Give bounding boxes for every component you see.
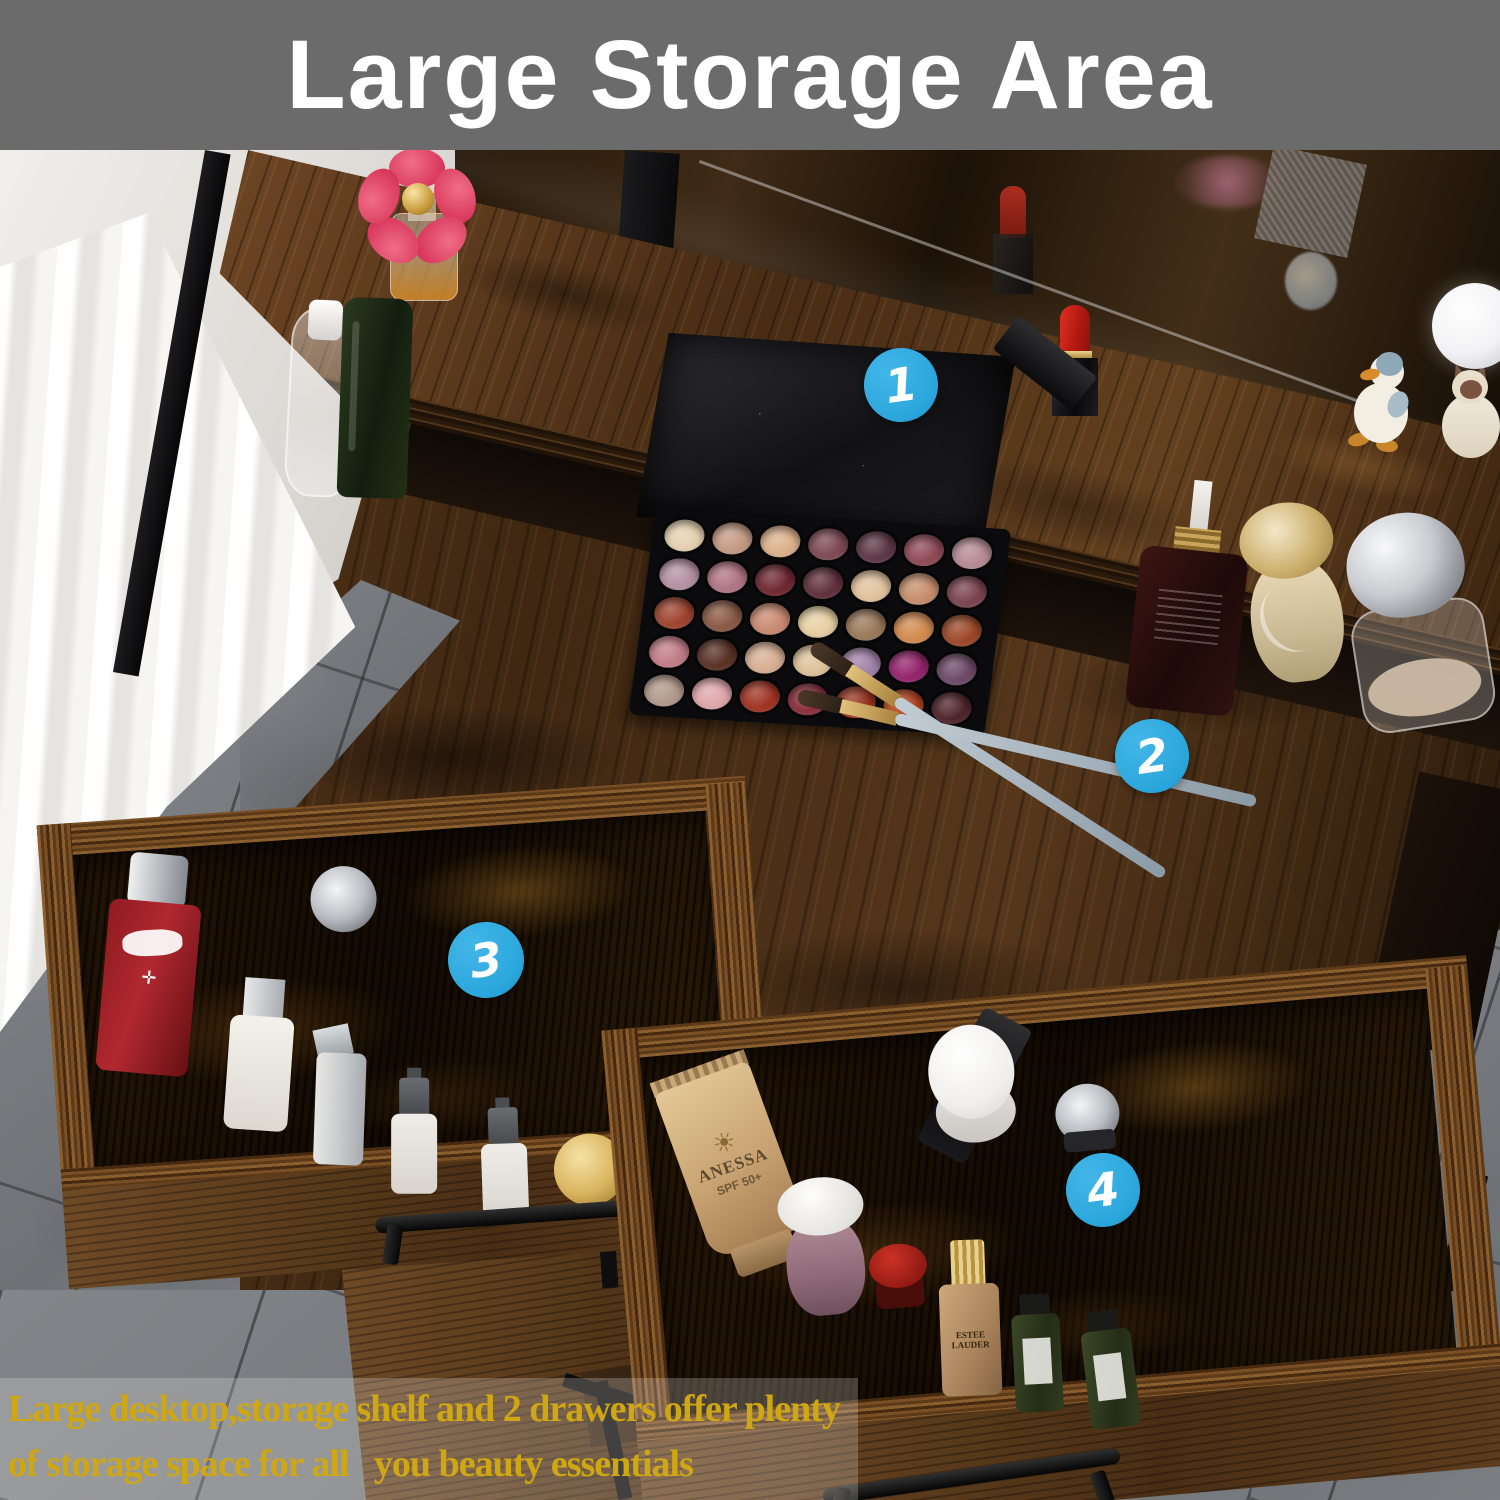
duck-cap xyxy=(1376,352,1403,376)
dropper-bottle xyxy=(391,1076,437,1194)
eyeshadow-pan xyxy=(705,560,749,594)
bottle-body xyxy=(391,1114,437,1194)
bottle-cap xyxy=(243,977,286,1020)
dropper-cap xyxy=(487,1107,518,1146)
white-compact xyxy=(924,1021,1020,1152)
banner-title: Large Storage Area xyxy=(286,19,1213,131)
bottle-body: ESTEE LAUDER xyxy=(939,1283,1003,1397)
label-cross: ✛ xyxy=(141,969,158,986)
eyeshadow-pan xyxy=(743,641,787,675)
eyeshadow-pan xyxy=(700,599,744,633)
eyeshadow-pan xyxy=(849,569,893,603)
eyeshadow-pan xyxy=(710,521,754,555)
eyeshadow-pan xyxy=(753,563,797,597)
bottle-body xyxy=(223,1014,295,1132)
eyeshadow-pan xyxy=(945,575,989,609)
cat-face xyxy=(1460,380,1482,399)
product-image: Large Storage Area xyxy=(0,0,1500,1500)
eyeshadow-pan xyxy=(758,524,802,558)
marker-2-number: 2 xyxy=(1132,727,1171,785)
eyeshadow-pan xyxy=(892,611,936,645)
mirror-reflection-lipstick xyxy=(1000,186,1026,238)
duck-figurine xyxy=(1348,355,1420,450)
eyeshadow-pan xyxy=(806,527,850,561)
spray-cap xyxy=(307,299,343,341)
mirror-reflection-lipstick xyxy=(993,234,1033,294)
caption-line-2: of storage space for all you beauty esse… xyxy=(8,1437,850,1492)
caption-line-1: Large desktop,storage shelf and 2 drawer… xyxy=(8,1382,850,1437)
flower-perfume-bottle xyxy=(360,150,490,320)
eyeshadow-pan xyxy=(887,649,931,683)
title-banner: Large Storage Area xyxy=(0,0,1500,150)
eyeshadow-pan xyxy=(652,596,696,630)
eyeshadow-pan xyxy=(738,679,782,713)
eyeshadow-pan xyxy=(854,530,898,564)
red-jar xyxy=(867,1241,931,1314)
eyeshadow-pan xyxy=(940,614,984,648)
eyeshadow-pan xyxy=(801,566,845,600)
eyeshadow-pan xyxy=(950,536,994,570)
dropper-cap xyxy=(399,1078,429,1116)
bottle-body xyxy=(313,1052,367,1166)
eyeshadow-pan xyxy=(902,533,946,567)
cat-figurine xyxy=(1438,370,1500,462)
eyeshadow-pan xyxy=(647,635,691,669)
lipstick-bullet xyxy=(1060,305,1090,353)
green-bottle xyxy=(1010,1293,1064,1413)
marker-4-number: 4 xyxy=(1083,1161,1122,1219)
mirror-reflection xyxy=(1254,150,1367,258)
bottle-label xyxy=(1154,587,1223,645)
eyeshadow-pan xyxy=(748,602,792,636)
foundation-brand-label: ESTEE LAUDER xyxy=(944,1329,997,1351)
eyeshadow-pan xyxy=(935,652,979,686)
toner-bottle: ✛ xyxy=(95,850,206,1077)
eyeshadow-pan xyxy=(695,638,739,672)
eyeshadow-pan xyxy=(844,608,888,642)
photo-scene: ✛ xyxy=(0,150,1500,1500)
foundation-bottle: ESTEE LAUDER xyxy=(937,1239,1002,1397)
mirror-reflection-duck xyxy=(1285,252,1337,310)
bottle-label xyxy=(1022,1337,1052,1384)
caption-overlay: Large desktop,storage shelf and 2 drawer… xyxy=(0,1378,858,1500)
eyeshadow-pan xyxy=(690,676,734,710)
bottle-cap xyxy=(950,1239,986,1288)
bottle-label xyxy=(1093,1352,1126,1401)
marker-3-number: 3 xyxy=(466,931,505,989)
flower-center xyxy=(402,183,434,215)
eyeshadow-pan xyxy=(642,673,686,707)
cream-jar xyxy=(775,1174,873,1323)
eyeshadow-pan xyxy=(662,518,706,552)
eyeshadow-pan xyxy=(897,572,941,606)
pump-bottle xyxy=(309,1026,370,1166)
lotion-bottle xyxy=(223,976,297,1132)
eyeshadow-pan xyxy=(796,605,840,639)
marker-1-number: 1 xyxy=(881,356,920,414)
eyeshadow-pan xyxy=(657,557,701,591)
green-serum-bottle xyxy=(337,297,414,499)
